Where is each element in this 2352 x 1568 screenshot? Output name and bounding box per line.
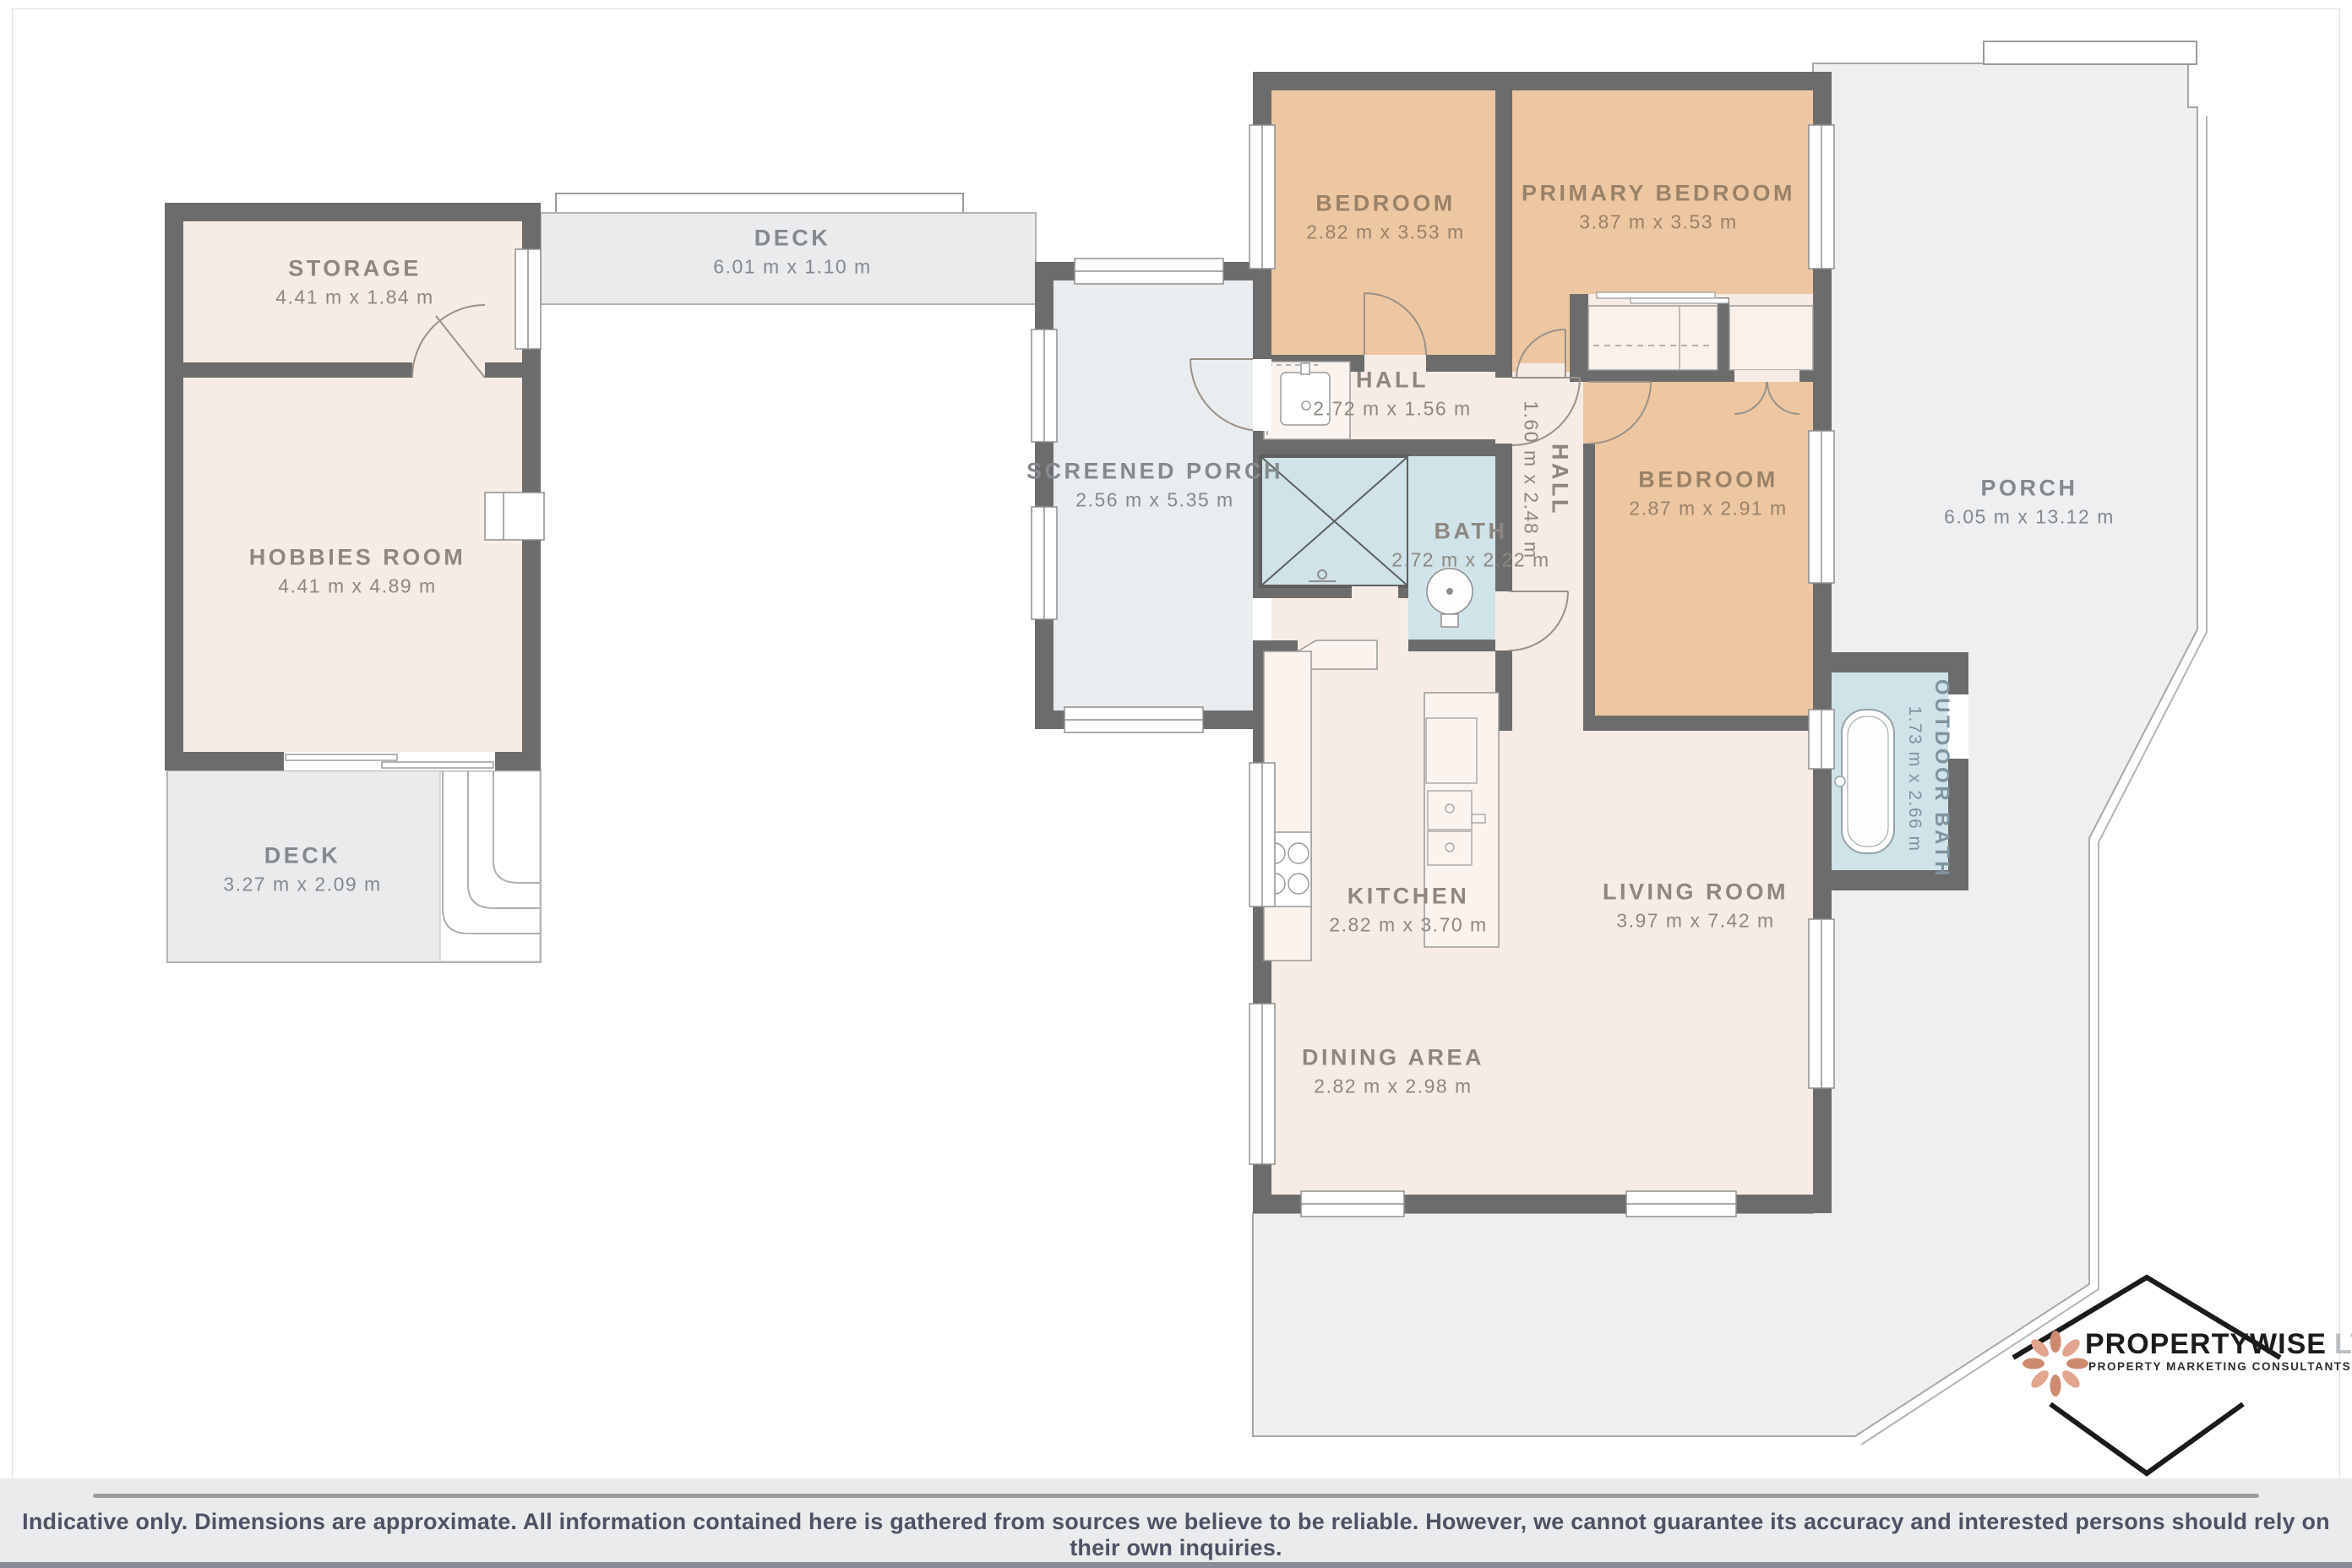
room-label-hall1: HALL 2.72 m x 1.56 m bbox=[1313, 369, 1471, 419]
deck-top-overhang bbox=[556, 193, 963, 214]
porch-name: PORCH bbox=[1944, 477, 2115, 500]
room-label-kitchen: KITCHEN 2.82 m x 3.70 m bbox=[1329, 885, 1487, 935]
primary-bedroom-floor-strip bbox=[1512, 294, 1570, 372]
hall1-name: HALL bbox=[1313, 369, 1471, 392]
hall1-dims: 2.72 m x 1.56 m bbox=[1313, 400, 1471, 419]
kitchen-name: KITCHEN bbox=[1329, 885, 1487, 908]
bathtub-icon bbox=[1835, 710, 1894, 853]
primary-bedroom-name: PRIMARY BEDROOM bbox=[1522, 182, 1795, 205]
screened-porch-name: SCREENED PORCH bbox=[1026, 460, 1283, 483]
logo-brand-name: PROPERTYWISE bbox=[2085, 1328, 2327, 1360]
room-label-bedroom2: BEDROOM 2.87 m x 2.91 m bbox=[1629, 469, 1787, 519]
room-label-hobbies: HOBBIES ROOM 4.41 m x 4.89 m bbox=[249, 547, 466, 596]
bedroom1-dims: 2.82 m x 3.53 m bbox=[1306, 223, 1464, 242]
living-name: LIVING ROOM bbox=[1603, 881, 1788, 904]
room-label-porch: PORCH 6.05 m x 13.12 m bbox=[1944, 477, 2115, 527]
floor-plan-page: STORAGE 4.41 m x 1.84 m HOBBIES ROOM 4.4… bbox=[0, 0, 2352, 1568]
porch-roof-notch bbox=[1984, 41, 2197, 64]
hall2-dims: 1.60 m x 2.48 m bbox=[1522, 400, 1541, 558]
logo-tagline: PROPERTY MARKETING CONSULTANTS bbox=[2088, 1360, 2351, 1373]
deck-top-dims: 6.01 m x 1.10 m bbox=[713, 258, 871, 277]
outdoor-bath-dims: 1.73 m x 2.66 m bbox=[1906, 679, 1924, 879]
screened-porch-dims: 2.56 m x 5.35 m bbox=[1026, 491, 1283, 510]
storage-name: STORAGE bbox=[275, 258, 433, 280]
dining-name: DINING AREA bbox=[1302, 1047, 1484, 1070]
kitchen-dims: 2.82 m x 3.70 m bbox=[1329, 916, 1487, 935]
room-label-deck-top: DECK 6.01 m x 1.10 m bbox=[713, 227, 871, 277]
room-label-hall2: HALL 1.60 m x 2.48 m bbox=[1522, 400, 1571, 558]
room-label-storage: STORAGE 4.41 m x 1.84 m bbox=[275, 258, 433, 308]
room-label-bedroom1: BEDROOM 2.82 m x 3.53 m bbox=[1306, 193, 1464, 242]
room-label-outdoor-bath: OUTDOOR BATH 1.73 m x 2.66 m bbox=[1906, 679, 1952, 879]
bedroom2-dims: 2.87 m x 2.91 m bbox=[1629, 499, 1787, 519]
footer-divider bbox=[93, 1494, 2259, 1498]
room-label-screened-porch: SCREENED PORCH 2.56 m x 5.35 m bbox=[1026, 460, 1283, 510]
primary-bedroom-dims: 3.87 m x 3.53 m bbox=[1522, 213, 1795, 232]
outdoor-bath-window bbox=[1809, 710, 1834, 769]
hall2-name: HALL bbox=[1549, 400, 1571, 558]
room-label-dining: DINING AREA 2.82 m x 2.98 m bbox=[1302, 1047, 1484, 1097]
storage-window bbox=[515, 249, 541, 349]
deck-bottom-dims: 3.27 m x 2.09 m bbox=[223, 875, 381, 895]
logo-flower-icon bbox=[2023, 1331, 2088, 1396]
hobbies-sliding-door bbox=[284, 752, 495, 770]
page-bottom-edge bbox=[0, 1562, 2352, 1568]
deck-bottom-name: DECK bbox=[223, 845, 381, 868]
dining-dims: 2.82 m x 2.98 m bbox=[1302, 1077, 1484, 1097]
logo-brand-suffix: LTD bbox=[2334, 1328, 2352, 1360]
storage-dims: 4.41 m x 1.84 m bbox=[275, 288, 433, 308]
room-label-living: LIVING ROOM 3.97 m x 7.42 m bbox=[1603, 881, 1788, 931]
logo-wordmark: PROPERTYWISELTD bbox=[2085, 1328, 2352, 1361]
outdoor-bath-name: OUTDOOR BATH bbox=[1931, 679, 1952, 879]
footer-disclaimer: Indicative only. Dimensions are approxim… bbox=[0, 1509, 2352, 1561]
hobbies-name: HOBBIES ROOM bbox=[249, 547, 466, 569]
bedroom1-name: BEDROOM bbox=[1306, 193, 1464, 215]
hobbies-box-window bbox=[485, 493, 544, 540]
room-label-primary-bedroom: PRIMARY BEDROOM 3.87 m x 3.53 m bbox=[1522, 182, 1795, 232]
bedroom2-name: BEDROOM bbox=[1629, 469, 1787, 492]
logo-diamond-bottom bbox=[2050, 1404, 2243, 1473]
living-dims: 3.97 m x 7.42 m bbox=[1603, 912, 1788, 931]
porch-dims: 6.05 m x 13.12 m bbox=[1944, 508, 2115, 527]
hobbies-dims: 4.41 m x 4.89 m bbox=[249, 577, 466, 596]
deck-top-name: DECK bbox=[713, 227, 871, 250]
floor-plan-drawing bbox=[0, 0, 2352, 1568]
closet bbox=[1729, 306, 1813, 370]
room-label-deck-bottom: DECK 3.27 m x 2.09 m bbox=[223, 845, 381, 895]
